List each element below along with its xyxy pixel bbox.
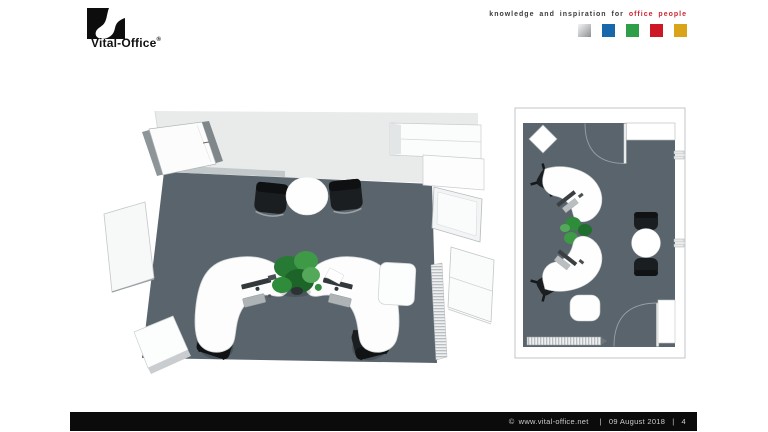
footer-website: www.vital-office.net <box>519 417 589 426</box>
vital-office-logo: Vital-Office® <box>87 8 125 39</box>
plan-visitor-chair-bottom <box>634 258 658 276</box>
brand-color-squares <box>489 24 687 37</box>
wall-board <box>432 187 482 242</box>
footer-bar: © www.vital-office.net | 09 August 2018 … <box>70 412 697 431</box>
window <box>448 247 494 324</box>
vital-office-logo-icon <box>87 8 125 39</box>
cantilever-chair-left <box>253 181 288 217</box>
cube-container <box>378 262 416 306</box>
plan-desk-return-cabinet <box>570 295 600 321</box>
cantilever-chair-right <box>328 178 363 214</box>
round-table <box>286 177 328 215</box>
copyright-icon: © <box>509 417 515 426</box>
floor-plan-view <box>513 106 688 361</box>
plan-meeting-group <box>632 212 661 276</box>
plan-side-cabinet <box>658 300 675 343</box>
footer-page-number: 4 <box>682 417 686 426</box>
brand-square-silver <box>578 24 591 37</box>
tagline: knowledge and inspiration for office peo… <box>489 11 687 18</box>
plan-visitor-chair-top <box>634 212 658 230</box>
brand-square-blue <box>602 24 615 37</box>
logo-wordmark: Vital-Office® <box>91 36 161 50</box>
brand-square-green <box>626 24 639 37</box>
footer-date: 09 August 2018 <box>609 417 665 426</box>
tagline-highlight: office people <box>629 11 687 18</box>
office-room-3d-view <box>85 95 505 385</box>
footer-separator: | <box>672 417 674 426</box>
plan-radiator <box>527 337 607 345</box>
leaning-whiteboard <box>104 202 154 292</box>
brand-square-gold <box>674 24 687 37</box>
plan-notch <box>625 123 675 140</box>
door-leaf <box>624 124 627 164</box>
header-tagline-block: knowledge and inspiration for office peo… <box>489 11 687 37</box>
plan-round-table <box>632 229 661 258</box>
footer-separator: | <box>600 417 602 426</box>
brand-square-red <box>650 24 663 37</box>
